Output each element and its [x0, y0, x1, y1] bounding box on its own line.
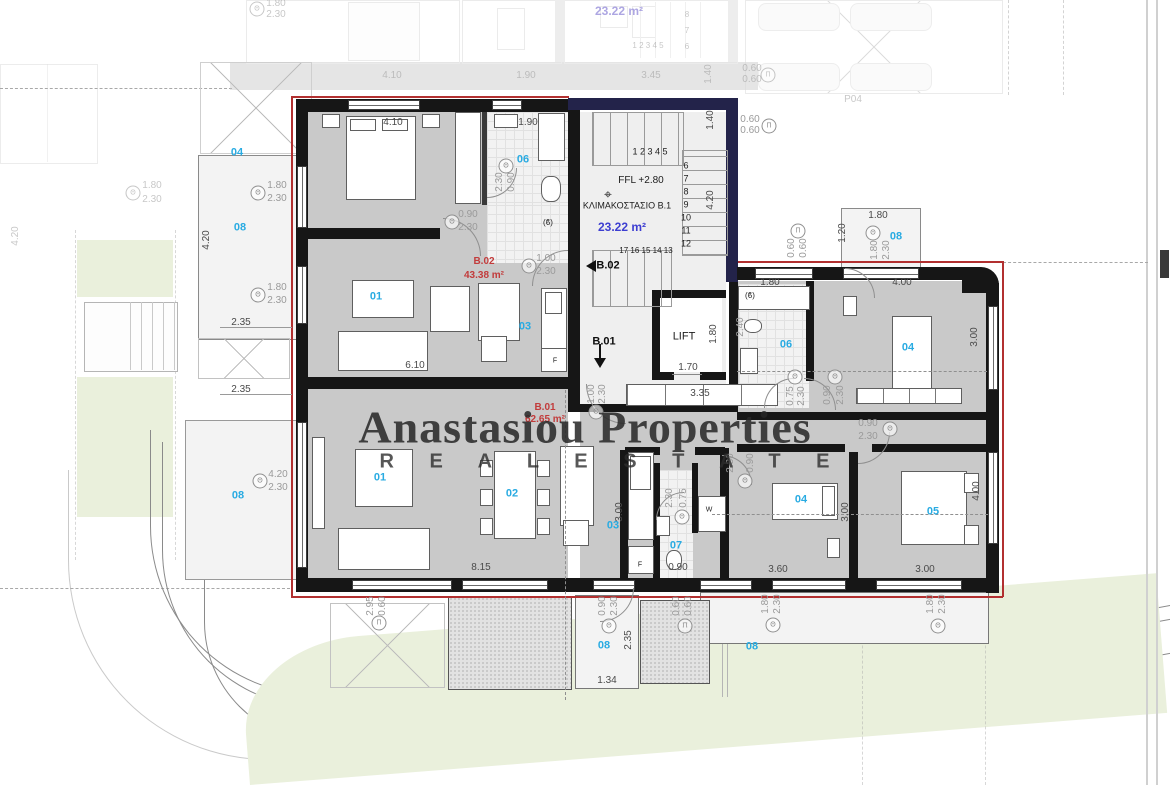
- floor-plan-canvas: ⌖: [0, 0, 1170, 785]
- window-type-symbol: Θ: [788, 370, 803, 385]
- dimension-label: 2.40: [736, 317, 746, 336]
- faded-dimension-label: 1.80: [266, 0, 285, 9]
- dimension-label: 3.00: [915, 565, 934, 575]
- window-type-symbol: Θ: [253, 474, 268, 489]
- text-label: 11: [681, 227, 690, 236]
- window-type-symbol: Θ: [126, 186, 141, 201]
- dimension-label: 2.35: [624, 630, 634, 649]
- room-number-label: 04: [231, 148, 243, 159]
- dimension-label: 8.15: [471, 563, 490, 573]
- window-type-symbol: Π: [761, 68, 776, 83]
- room-number-label: 05: [927, 507, 939, 518]
- dimension-label: 0.90: [668, 563, 687, 573]
- labels-layer: 0406080103080604080102030704050808FFL +2…: [0, 0, 1170, 785]
- text-label: (ϐ): [543, 219, 553, 227]
- dimension-label: 2.30: [267, 194, 286, 204]
- window-type-symbol: Π: [762, 119, 777, 134]
- room-number-label: 06: [780, 340, 792, 351]
- text-label: F: [638, 562, 642, 569]
- window-type-symbol: Θ: [522, 259, 537, 274]
- dimension-label: 1.00: [536, 254, 555, 264]
- watermark-title: Anastasiou Properties: [358, 401, 811, 454]
- dimension-label: 1.80: [926, 594, 936, 613]
- dimension-label: 4.20: [706, 190, 716, 209]
- dimension-label: 0.60: [799, 238, 809, 257]
- room-number-label: 07: [670, 541, 682, 552]
- dimension-label: 2.30: [495, 172, 505, 191]
- dimension-label: 2.30: [665, 488, 675, 507]
- dimension-label: 1.80: [709, 324, 719, 343]
- dimension-label: 1.34: [597, 676, 616, 686]
- dimension-label: 2.30: [267, 296, 286, 306]
- text-label: FFL +2.80: [618, 176, 664, 186]
- room-number-label: 01: [374, 473, 386, 484]
- dimension-label: 0.90: [858, 419, 877, 429]
- dimension-label: 0.60: [740, 126, 759, 136]
- dimension-label: 2.30: [773, 594, 783, 613]
- room-number-label: 02: [506, 489, 518, 500]
- dimension-label: 3.60: [768, 565, 787, 575]
- text-label: 1 2 3 4 5: [632, 148, 667, 157]
- dimension-label: 1.80: [267, 283, 286, 293]
- room-number-label: 04: [795, 495, 807, 506]
- faded-dimension-label: 1.80: [142, 181, 161, 191]
- dimension-label: 1.40: [706, 110, 716, 129]
- unit-area-label: B.02: [473, 257, 494, 267]
- window-type-symbol: Π: [372, 616, 387, 631]
- dimension-label: 3.35: [690, 389, 709, 399]
- window-type-symbol: Θ: [251, 186, 266, 201]
- text-label: F: [553, 358, 557, 365]
- window-type-symbol: Θ: [866, 226, 881, 241]
- dimension-label: 6.10: [405, 361, 424, 371]
- window-type-symbol: Θ: [251, 288, 266, 303]
- unit-entry-label: B.01: [592, 337, 615, 348]
- dimension-label: 0.60: [740, 115, 759, 125]
- dimension-label: 2.95: [366, 596, 376, 615]
- dimension-label: 1.70: [678, 363, 697, 373]
- room-number-label: 01: [370, 292, 382, 303]
- dimension-label: 2.30: [268, 483, 287, 493]
- faded-dimension-label: 8: [685, 11, 689, 19]
- dimension-label: 4.00: [972, 481, 982, 500]
- dimension-label: 2.30: [882, 240, 892, 259]
- faded-dimension-label: P04: [844, 95, 862, 105]
- faded-dimension-label: 0.60: [742, 64, 761, 74]
- dimension-label: 0.90: [598, 596, 608, 615]
- window-type-symbol: Π: [791, 224, 806, 239]
- dimension-label: 0.60: [787, 238, 797, 257]
- dimension-label: 3.00: [841, 502, 851, 521]
- dimension-label: 0.90: [823, 385, 833, 404]
- faded-dimension-label: 4.20: [11, 226, 21, 245]
- dimension-label: 2.30: [858, 432, 877, 442]
- window-type-symbol: Θ: [828, 370, 843, 385]
- dimension-label: 3.00: [970, 327, 980, 346]
- window-type-symbol: Θ: [499, 159, 514, 174]
- dimension-label: 2.30: [610, 596, 620, 615]
- dimension-label: 0.75: [679, 488, 689, 507]
- text-label: 8: [683, 188, 688, 197]
- dimension-label: 2.35: [231, 385, 250, 395]
- dimension-label: 1.80: [868, 211, 887, 221]
- dimension-label: 3.00: [615, 502, 625, 521]
- dimension-label: 1.80: [870, 240, 880, 259]
- window-type-symbol: Θ: [738, 474, 753, 489]
- room-number-label: 04: [902, 343, 914, 354]
- text-label: 12: [681, 240, 691, 249]
- faded-dimension-label: 1 2 3 4 5: [632, 42, 663, 50]
- dimension-label: 2.30: [836, 385, 846, 404]
- faded-dimension-label: 7: [685, 27, 689, 35]
- dimension-label: 1.80: [267, 181, 286, 191]
- window-type-symbol: Θ: [883, 422, 898, 437]
- dimension-label: 1.90: [518, 118, 537, 128]
- text-label: (ϐ): [745, 292, 755, 300]
- room-number-label: 08: [598, 641, 610, 652]
- dimension-label: 0.60: [672, 596, 682, 615]
- room-number-label: 03: [519, 322, 531, 333]
- dimension-label: 1.80: [761, 594, 771, 613]
- dimension-label: 4.20: [202, 230, 212, 249]
- faded-dimension-label: 2.30: [266, 10, 285, 20]
- window-type-symbol: Θ: [602, 619, 617, 634]
- stairwell-area-label: 23.22 m²: [598, 221, 646, 233]
- unit-area-label: 43.38 m²: [464, 271, 504, 281]
- dimension-label: 0.60: [378, 596, 388, 615]
- dimension-label: 2.30: [536, 267, 555, 277]
- text-label: W: [706, 507, 713, 514]
- dimension-label: 2.30: [458, 223, 477, 233]
- dimension-label: 0.60: [684, 596, 694, 615]
- dimension-label: 0.90: [458, 210, 477, 220]
- text-label: 7: [683, 175, 688, 184]
- faded-dimension-label: 4.10: [382, 71, 401, 81]
- text-label: 17 16 15 14 13: [619, 247, 672, 255]
- dimension-label: 1.20: [838, 223, 848, 242]
- text-label: 10: [681, 214, 691, 223]
- window-type-symbol: Θ: [675, 510, 690, 525]
- room-number-label: 06: [517, 155, 529, 166]
- faded-dimension-label: 6: [685, 43, 689, 51]
- faded-dimension-label: 0.60: [742, 75, 761, 85]
- faded-dimension-label: 1.40: [704, 64, 714, 83]
- text-label: LIFT: [673, 332, 696, 343]
- faded-dimension-label: 1.90: [516, 71, 535, 81]
- watermark-subtitle: R E A L E S T A T E: [379, 451, 844, 474]
- faded-area-label: 23.22 m²: [595, 5, 643, 17]
- room-number-label: 08: [746, 642, 758, 653]
- text-label: 6: [683, 162, 688, 171]
- window-type-symbol: Θ: [931, 619, 946, 634]
- dimension-label: 4.20: [268, 470, 287, 480]
- window-type-symbol: Θ: [250, 2, 265, 17]
- dimension-label: 2.35: [231, 318, 250, 328]
- dimension-label: 1.80: [760, 278, 779, 288]
- dimension-label: 0.90: [507, 172, 517, 191]
- text-label: ΚΛΙΜΑΚΟΣΤΑΣΙΟ B.1: [583, 202, 671, 211]
- room-number-label: 08: [232, 491, 244, 502]
- ffl-level-marker-icon: ⌖: [604, 187, 612, 201]
- window-type-symbol: Π: [678, 619, 693, 634]
- room-number-label: 08: [234, 223, 246, 234]
- text-label: 9: [683, 201, 688, 210]
- dimension-label: 4.10: [383, 118, 402, 128]
- faded-dimension-label: 2.30: [142, 195, 161, 205]
- window-type-symbol: Θ: [445, 215, 460, 230]
- dimension-label: 2.30: [938, 594, 948, 613]
- unit-entry-label: B.02: [596, 261, 619, 272]
- room-number-label: 03: [607, 521, 619, 532]
- dimension-label: 4.00: [892, 278, 911, 288]
- faded-dimension-label: 3.45: [641, 71, 660, 81]
- window-type-symbol: Θ: [766, 618, 781, 633]
